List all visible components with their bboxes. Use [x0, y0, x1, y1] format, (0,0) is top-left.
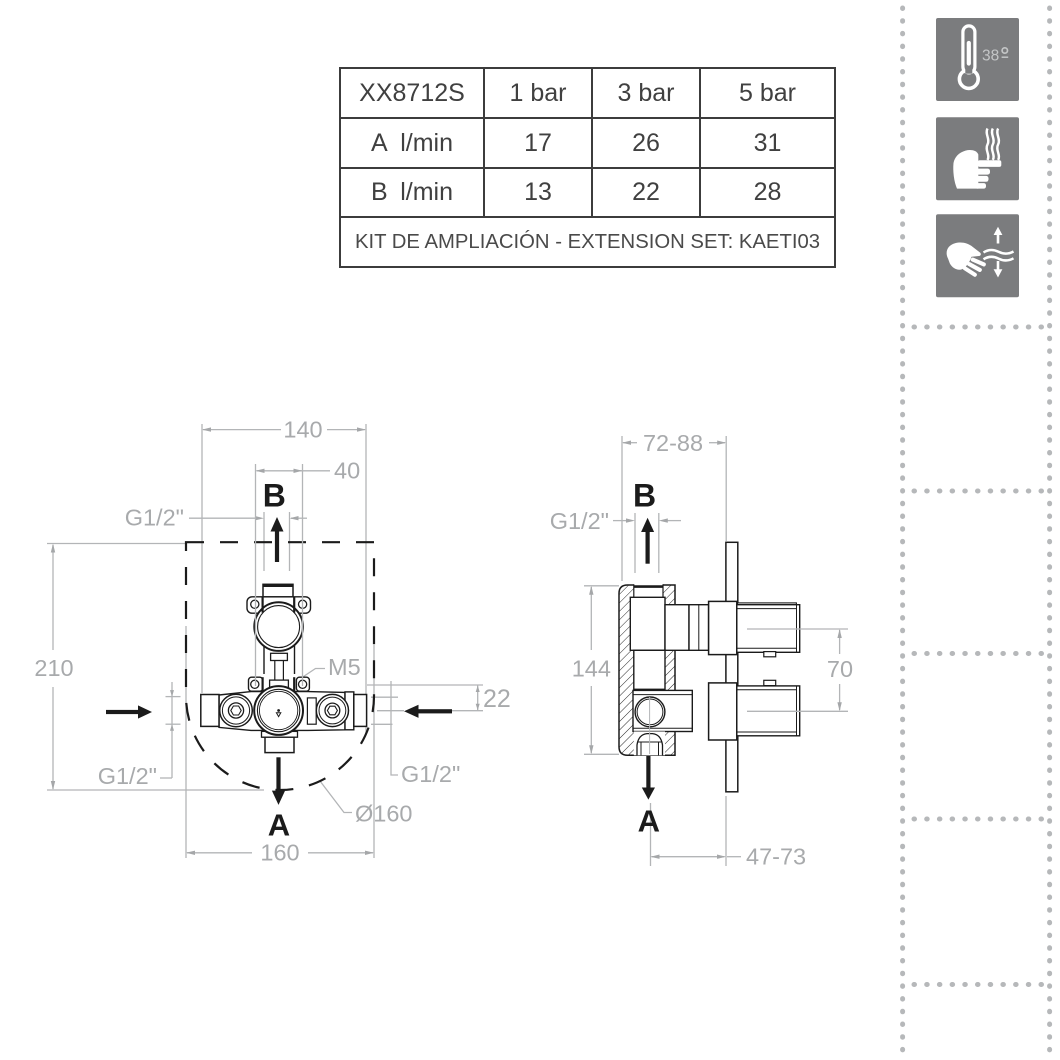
- svg-text:140: 140: [283, 417, 322, 443]
- svg-text:72-88: 72-88: [643, 430, 703, 456]
- svg-text:G1/2": G1/2": [550, 508, 609, 534]
- svg-text:B: B: [633, 477, 656, 513]
- svg-text:G1/2": G1/2": [125, 505, 184, 531]
- svg-text:22: 22: [483, 685, 511, 713]
- svg-text:70: 70: [827, 656, 853, 682]
- svg-text:47-73: 47-73: [746, 844, 806, 870]
- svg-text:38: 38: [982, 48, 999, 65]
- svg-text:G1/2": G1/2": [401, 761, 460, 787]
- svg-text:160: 160: [260, 840, 299, 866]
- svg-text:210: 210: [34, 655, 73, 681]
- svg-text:M5: M5: [328, 654, 361, 680]
- svg-text:144: 144: [572, 656, 611, 682]
- svg-text:Ø160: Ø160: [355, 801, 413, 827]
- svg-text:A: A: [268, 808, 290, 843]
- svg-text:A: A: [638, 804, 660, 839]
- svg-text:G1/2": G1/2": [98, 763, 157, 789]
- svg-text:40: 40: [334, 458, 360, 484]
- svg-text:B: B: [263, 478, 286, 514]
